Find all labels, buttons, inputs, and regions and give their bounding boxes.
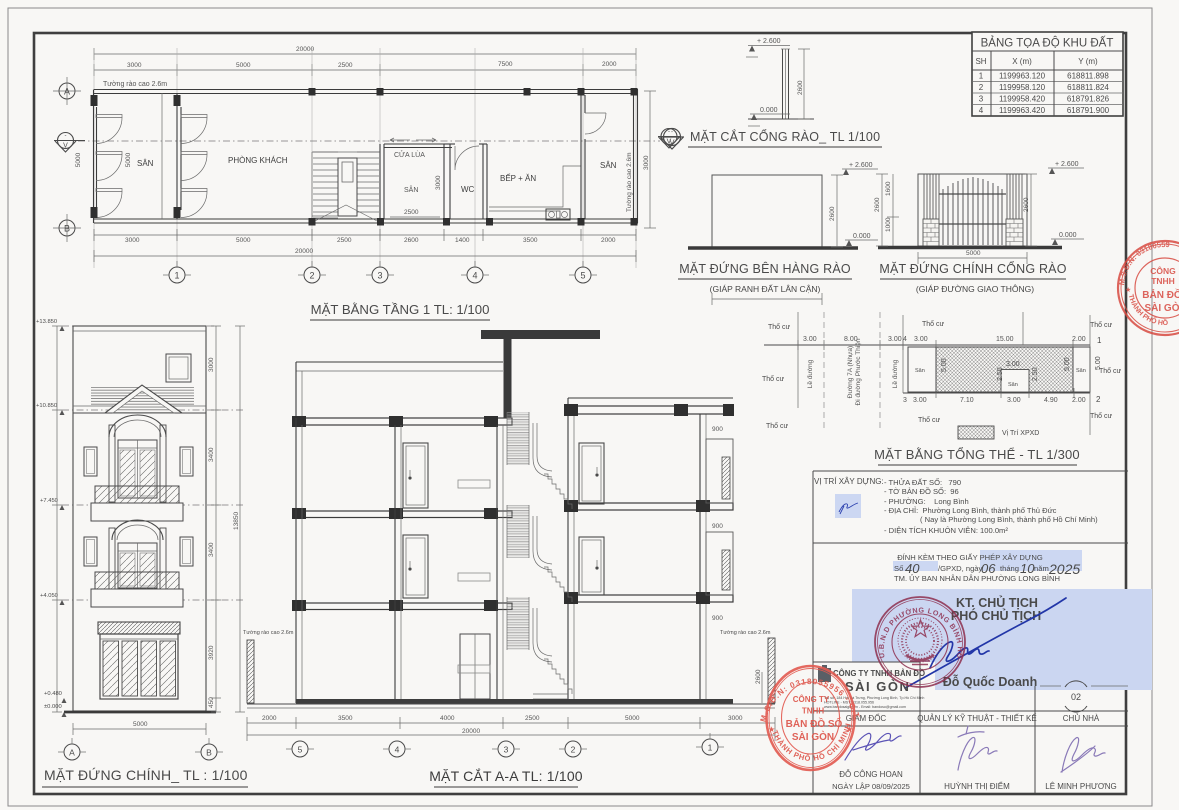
svg-text:900: 900: [712, 426, 723, 433]
svg-text:1600: 1600: [885, 181, 892, 196]
svg-text:4.90: 4.90: [1044, 397, 1058, 404]
svg-text:MẶT BẰNG TỔNG THỂ - TL 1/300: MẶT BẰNG TỔNG THỂ - TL 1/300: [874, 447, 1080, 462]
svg-text:3000: 3000: [643, 155, 650, 170]
svg-text:MẶT ĐỨNG CHÍNH CỔNG RÀO: MẶT ĐỨNG CHÍNH CỔNG RÀO: [879, 261, 1066, 276]
svg-text:CỬA LÙA: CỬA LÙA: [394, 150, 425, 159]
svg-text:3500: 3500: [523, 237, 538, 244]
svg-text:3.00: 3.00: [888, 336, 902, 343]
svg-text:2500: 2500: [525, 715, 540, 722]
svg-text:SH: SH: [975, 57, 986, 66]
svg-text:5000: 5000: [966, 250, 981, 257]
svg-text:3: 3: [979, 95, 984, 104]
svg-text:1000: 1000: [885, 217, 892, 232]
svg-text:900: 900: [712, 523, 723, 530]
svg-text:1: 1: [174, 271, 179, 281]
svg-text:0.000: 0.000: [853, 233, 871, 240]
svg-text:+ 2.600: + 2.600: [757, 38, 781, 45]
svg-text:CÔNG: CÔNG: [1150, 265, 1176, 276]
svg-text:ĐỖ CÔNG HOAN: ĐỖ CÔNG HOAN: [839, 770, 903, 779]
svg-text:618811.898: 618811.898: [1067, 72, 1109, 81]
svg-text:+13.850: +13.850: [36, 319, 57, 325]
svg-text:3000: 3000: [127, 62, 142, 69]
svg-text:2: 2: [1096, 395, 1101, 404]
svg-text:Thổ cư: Thổ cư: [1090, 321, 1113, 329]
svg-text:BẢN ĐỒ: BẢN ĐỒ: [1142, 288, 1179, 301]
svg-text:TNHH: TNHH: [1151, 276, 1175, 286]
svg-text:13850: 13850: [233, 512, 240, 530]
svg-text:2600: 2600: [797, 80, 804, 95]
svg-text:5000: 5000: [125, 152, 132, 167]
svg-text:+ 2.600: + 2.600: [849, 162, 873, 169]
svg-text:V: V: [63, 143, 68, 150]
svg-text:- THỬA ĐẤT SỐ: 790: - THỬA ĐẤT SỐ: 790: [884, 477, 961, 487]
svg-text:MẶT ĐỨNG BÊN HÀNG RÀO: MẶT ĐỨNG BÊN HÀNG RÀO: [679, 261, 851, 276]
svg-text:MẶT BẰNG TẦNG 1 TL: 1/100: MẶT BẰNG TẦNG 1 TL: 1/100: [311, 302, 490, 317]
svg-text:3400: 3400: [208, 447, 215, 462]
svg-text:TM. ỦY BAN NHÂN DÂN PHƯỜNG LON: TM. ỦY BAN NHÂN DÂN PHƯỜNG LONG BÌNH: [894, 574, 1060, 583]
svg-text:B: B: [64, 224, 70, 234]
svg-text:Tường rào cao 2.6m: Tường rào cao 2.6m: [103, 81, 167, 88]
svg-text:+ 2.600: + 2.600: [1055, 161, 1079, 168]
svg-text:5: 5: [580, 271, 585, 281]
svg-text:( Nay là Phường Long Bình, thà: ( Nay là Phường Long Bình, thành phố Hồ …: [920, 515, 1098, 524]
svg-text:-: -: [65, 133, 67, 139]
svg-text:2.50: 2.50: [997, 367, 1004, 381]
svg-text:(GIÁP RANH ĐẤT LÂN CẬN): (GIÁP RANH ĐẤT LÂN CẬN): [710, 284, 821, 294]
svg-text:3.00: 3.00: [913, 397, 927, 404]
svg-text:5: 5: [298, 745, 303, 755]
svg-text:HUỲNH THỊ ĐIỂM: HUỲNH THỊ ĐIỂM: [944, 782, 1010, 791]
svg-text:Sân: Sân: [915, 368, 925, 374]
svg-text:NGÀY LẬP 08/09/2025: NGÀY LẬP 08/09/2025: [832, 782, 910, 791]
svg-text:BẢN ĐỒ SỐ: BẢN ĐỒ SỐ: [786, 716, 843, 730]
svg-text:MẶT CẮT A-A TL: 1/100: MẶT CẮT A-A TL: 1/100: [429, 767, 583, 784]
svg-text:618791.900: 618791.900: [1067, 106, 1110, 115]
svg-text:5000: 5000: [133, 721, 148, 728]
svg-text:Đi đường Phước Thiện: Đi đường Phước Thiện: [855, 338, 862, 405]
svg-text:SÀI GÒ: SÀI GÒ: [1144, 301, 1179, 314]
svg-text:1: 1: [1097, 336, 1102, 345]
svg-text:Thổ cư: Thổ cư: [762, 375, 785, 383]
svg-text:2000: 2000: [601, 237, 616, 244]
svg-text:4: 4: [395, 745, 400, 755]
svg-text:15.00: 15.00: [996, 336, 1014, 343]
svg-text:Thổ cư: Thổ cư: [1099, 367, 1122, 375]
svg-text:V: V: [669, 138, 674, 147]
svg-text:2.00: 2.00: [1072, 336, 1086, 343]
svg-text:SÀI GÒN: SÀI GÒN: [792, 730, 834, 743]
svg-text:★: ★: [768, 725, 775, 734]
svg-text:2600: 2600: [1023, 197, 1030, 212]
svg-text:2: 2: [571, 745, 576, 755]
svg-text:Sân: Sân: [1008, 382, 1018, 388]
svg-text:Lề đường: Lề đường: [890, 359, 899, 388]
svg-text:tháng: tháng: [1000, 564, 1019, 573]
svg-text:VỊ TRÍ XÂY DỰNG:: VỊ TRÍ XÂY DỰNG:: [814, 477, 884, 486]
svg-text:- PHƯỜNG: Long Bình: - PHƯỜNG: Long Bình: [884, 497, 969, 506]
svg-text:LÊ MINH PHƯƠNG: LÊ MINH PHƯƠNG: [1045, 782, 1116, 791]
svg-text:SÂN: SÂN: [404, 185, 418, 194]
svg-text:1199958.120: 1199958.120: [999, 83, 1046, 92]
svg-text:900: 900: [712, 615, 723, 622]
svg-text:QUẢN LÝ KỸ THUẬT - THIẾT KẾ: QUẢN LÝ KỸ THUẬT - THIẾT KẾ: [917, 713, 1036, 723]
svg-text:3400: 3400: [208, 542, 215, 557]
svg-text:BẾP + ĂN: BẾP + ĂN: [500, 173, 536, 183]
svg-text:7.10: 7.10: [960, 397, 974, 404]
svg-text:1400: 1400: [455, 237, 470, 244]
svg-text:20000: 20000: [295, 248, 313, 255]
svg-text:5000: 5000: [236, 62, 251, 69]
svg-text:3: 3: [903, 397, 907, 404]
svg-text:WC: WC: [461, 185, 475, 194]
svg-text:2600: 2600: [829, 206, 836, 221]
svg-text:1: 1: [708, 743, 713, 753]
svg-text:Thổ cư: Thổ cư: [918, 416, 941, 424]
svg-text:TNHH: TNHH: [802, 707, 824, 716]
svg-text:2000: 2000: [602, 61, 617, 68]
svg-text:2.00: 2.00: [1072, 397, 1086, 404]
svg-text:BẢNG TỌA ĐỘ KHU ĐẤT: BẢNG TỌA ĐỘ KHU ĐẤT: [981, 37, 1114, 50]
svg-text:+4.050: +4.050: [40, 593, 58, 599]
svg-text:3.00: 3.00: [1006, 361, 1020, 368]
svg-text:Tường rào cao 2.6m: Tường rào cao 2.6m: [720, 630, 771, 636]
svg-text:3000: 3000: [435, 175, 442, 190]
svg-text:1: 1: [979, 72, 984, 81]
svg-text:2: 2: [979, 83, 984, 92]
svg-text:0.000: 0.000: [1059, 232, 1077, 239]
svg-text:Thổ cư: Thổ cư: [922, 320, 945, 328]
svg-text:02: 02: [1071, 692, 1081, 702]
svg-text:KT. CHỦ TỊCH: KT. CHỦ TỊCH: [956, 595, 1038, 610]
svg-text:/GPXD, ngày: /GPXD, ngày: [938, 564, 983, 573]
svg-text:2600: 2600: [755, 669, 762, 684]
svg-text:4000: 4000: [440, 715, 455, 722]
svg-text:3920: 3920: [208, 645, 215, 660]
svg-text:2500: 2500: [337, 237, 352, 244]
svg-text:450: 450: [208, 697, 215, 708]
svg-text:3000: 3000: [125, 237, 140, 244]
svg-text:618791.826: 618791.826: [1067, 95, 1110, 104]
svg-text:(GIÁP ĐƯỜNG GIAO THÔNG): (GIÁP ĐƯỜNG GIAO THÔNG): [916, 284, 1034, 294]
svg-text:5.00: 5.00: [941, 358, 948, 372]
svg-text:CÔNG TY: CÔNG TY: [793, 695, 830, 704]
svg-text:CHỦ NHÀ: CHỦ NHÀ: [1063, 714, 1100, 723]
svg-text:MẶT CẮT CỔNG RÀO_ TL 1/100: MẶT CẮT CỔNG RÀO_ TL 1/100: [690, 129, 880, 144]
svg-text:3500: 3500: [338, 715, 353, 722]
svg-text:3.00: 3.00: [1007, 397, 1021, 404]
svg-text:MẶT ĐỨNG CHÍNH_ TL : 1/100: MẶT ĐỨNG CHÍNH_ TL : 1/100: [44, 767, 248, 783]
svg-text:5000: 5000: [236, 237, 251, 244]
svg-text:A: A: [64, 87, 70, 97]
svg-text:X (m): X (m): [1012, 57, 1032, 66]
svg-text:B: B: [206, 748, 212, 758]
svg-text:- ĐỊA CHỈ: Phường Long Bình,: - ĐỊA CHỈ: Phường Long Bình, thành phố T…: [884, 506, 1057, 515]
svg-text:3: 3: [504, 745, 509, 755]
svg-text:1199958.420: 1199958.420: [999, 95, 1046, 104]
svg-text:20000: 20000: [296, 46, 314, 53]
svg-text:1199963.120: 1199963.120: [999, 72, 1046, 81]
svg-text:Tường rào cao 2.6m: Tường rào cao 2.6m: [626, 152, 633, 212]
svg-text:Thổ cư: Thổ cư: [1090, 412, 1113, 420]
svg-text:Tường rào cao 2.6m: Tường rào cao 2.6m: [243, 630, 294, 636]
svg-text:Y (m): Y (m): [1078, 57, 1098, 66]
svg-text:CÔNG TY TNHH BẢN ĐỒ: CÔNG TY TNHH BẢN ĐỒ: [833, 668, 925, 678]
svg-text:Đường 7A (Nhựa): Đường 7A (Nhựa): [847, 346, 854, 398]
svg-text:3000: 3000: [728, 715, 743, 722]
svg-text:SÂN: SÂN: [137, 159, 154, 168]
svg-text:★: ★: [846, 725, 853, 734]
svg-text:- TỜ BẢN ĐỒ SỐ: 96: - TỜ BẢN ĐỒ SỐ: 96: [884, 486, 959, 496]
svg-text:3.00: 3.00: [914, 336, 928, 343]
svg-text:PHÒNG KHÁCH: PHÒNG KHÁCH: [228, 156, 288, 165]
svg-text:Thổ cư: Thổ cư: [766, 422, 789, 430]
svg-text:Sân: Sân: [1076, 368, 1086, 374]
svg-text:2000: 2000: [262, 715, 277, 722]
svg-text:SÂN: SÂN: [600, 161, 617, 170]
svg-text:5000: 5000: [75, 152, 82, 167]
svg-text:Vị Trí XPXD: Vị Trí XPXD: [1002, 430, 1039, 437]
svg-text:2500: 2500: [338, 62, 353, 69]
svg-text:5.00: 5.00: [1095, 356, 1102, 370]
svg-text:3000: 3000: [208, 357, 215, 372]
svg-text:4: 4: [903, 336, 907, 343]
svg-text:1199963.420: 1199963.420: [999, 106, 1046, 115]
svg-text:SÀI GÒN: SÀI GÒN: [845, 679, 910, 694]
svg-text:0.000: 0.000: [760, 107, 778, 114]
svg-text:20000: 20000: [462, 728, 480, 735]
svg-text:3: 3: [377, 271, 382, 281]
svg-text:4: 4: [979, 106, 984, 115]
svg-text:-: -: [671, 130, 673, 136]
svg-text:±0.000: ±0.000: [44, 704, 62, 710]
svg-text:+7.450: +7.450: [40, 498, 58, 504]
svg-text:+0.480: +0.480: [44, 691, 62, 697]
svg-text:+10.850: +10.850: [36, 403, 57, 409]
svg-text:4: 4: [472, 271, 477, 281]
svg-text:5.00: 5.00: [1064, 357, 1071, 371]
svg-text:★: ★: [1125, 286, 1131, 294]
svg-text:7500: 7500: [498, 61, 513, 68]
svg-text:2500: 2500: [404, 209, 419, 216]
svg-text:2600: 2600: [874, 197, 881, 212]
svg-text:- DIỆN TÍCH KHUÔN VIÊN: 100.0m: - DIỆN TÍCH KHUÔN VIÊN: 100.0m²: [884, 526, 1008, 535]
svg-text:2: 2: [309, 271, 314, 281]
svg-text:3.00: 3.00: [803, 336, 817, 343]
svg-text:Lề đường: Lề đường: [805, 359, 814, 388]
svg-text:Thổ cư: Thổ cư: [768, 323, 791, 331]
svg-text:2.50: 2.50: [1032, 367, 1039, 381]
svg-text:618811.824: 618811.824: [1067, 83, 1109, 92]
svg-text:www.bandosaigon.vn - Email: ba: www.bandosaigon.vn - Email: bandoso@gmai…: [824, 705, 906, 709]
svg-text:Đỗ Quốc Doanh: Đỗ Quốc Doanh: [943, 674, 1037, 689]
svg-text:A: A: [69, 748, 75, 758]
svg-text:5000: 5000: [625, 715, 640, 722]
svg-text:năm: năm: [1034, 564, 1049, 573]
svg-text:2600: 2600: [404, 237, 419, 244]
svg-text:Số: Số: [894, 564, 904, 573]
